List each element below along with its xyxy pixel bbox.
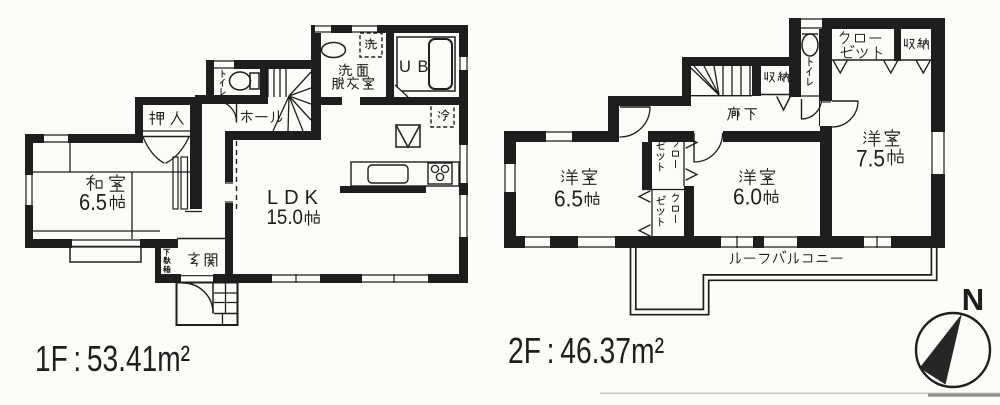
svg-text:N: N	[962, 282, 984, 317]
svg-text:6.5: 6.5	[554, 186, 583, 212]
svg-text:U B: U B	[399, 58, 430, 76]
svg-text:7.5: 7.5	[856, 146, 885, 173]
svg-text:6.0: 6.0	[733, 184, 762, 210]
svg-text:15.0: 15.0	[267, 205, 304, 229]
svg-text:2F : 46.37m²: 2F : 46.37m²	[508, 330, 664, 371]
svg-text:6.5: 6.5	[79, 189, 107, 215]
svg-text:1F : 53.41m²: 1F : 53.41m²	[35, 338, 190, 379]
